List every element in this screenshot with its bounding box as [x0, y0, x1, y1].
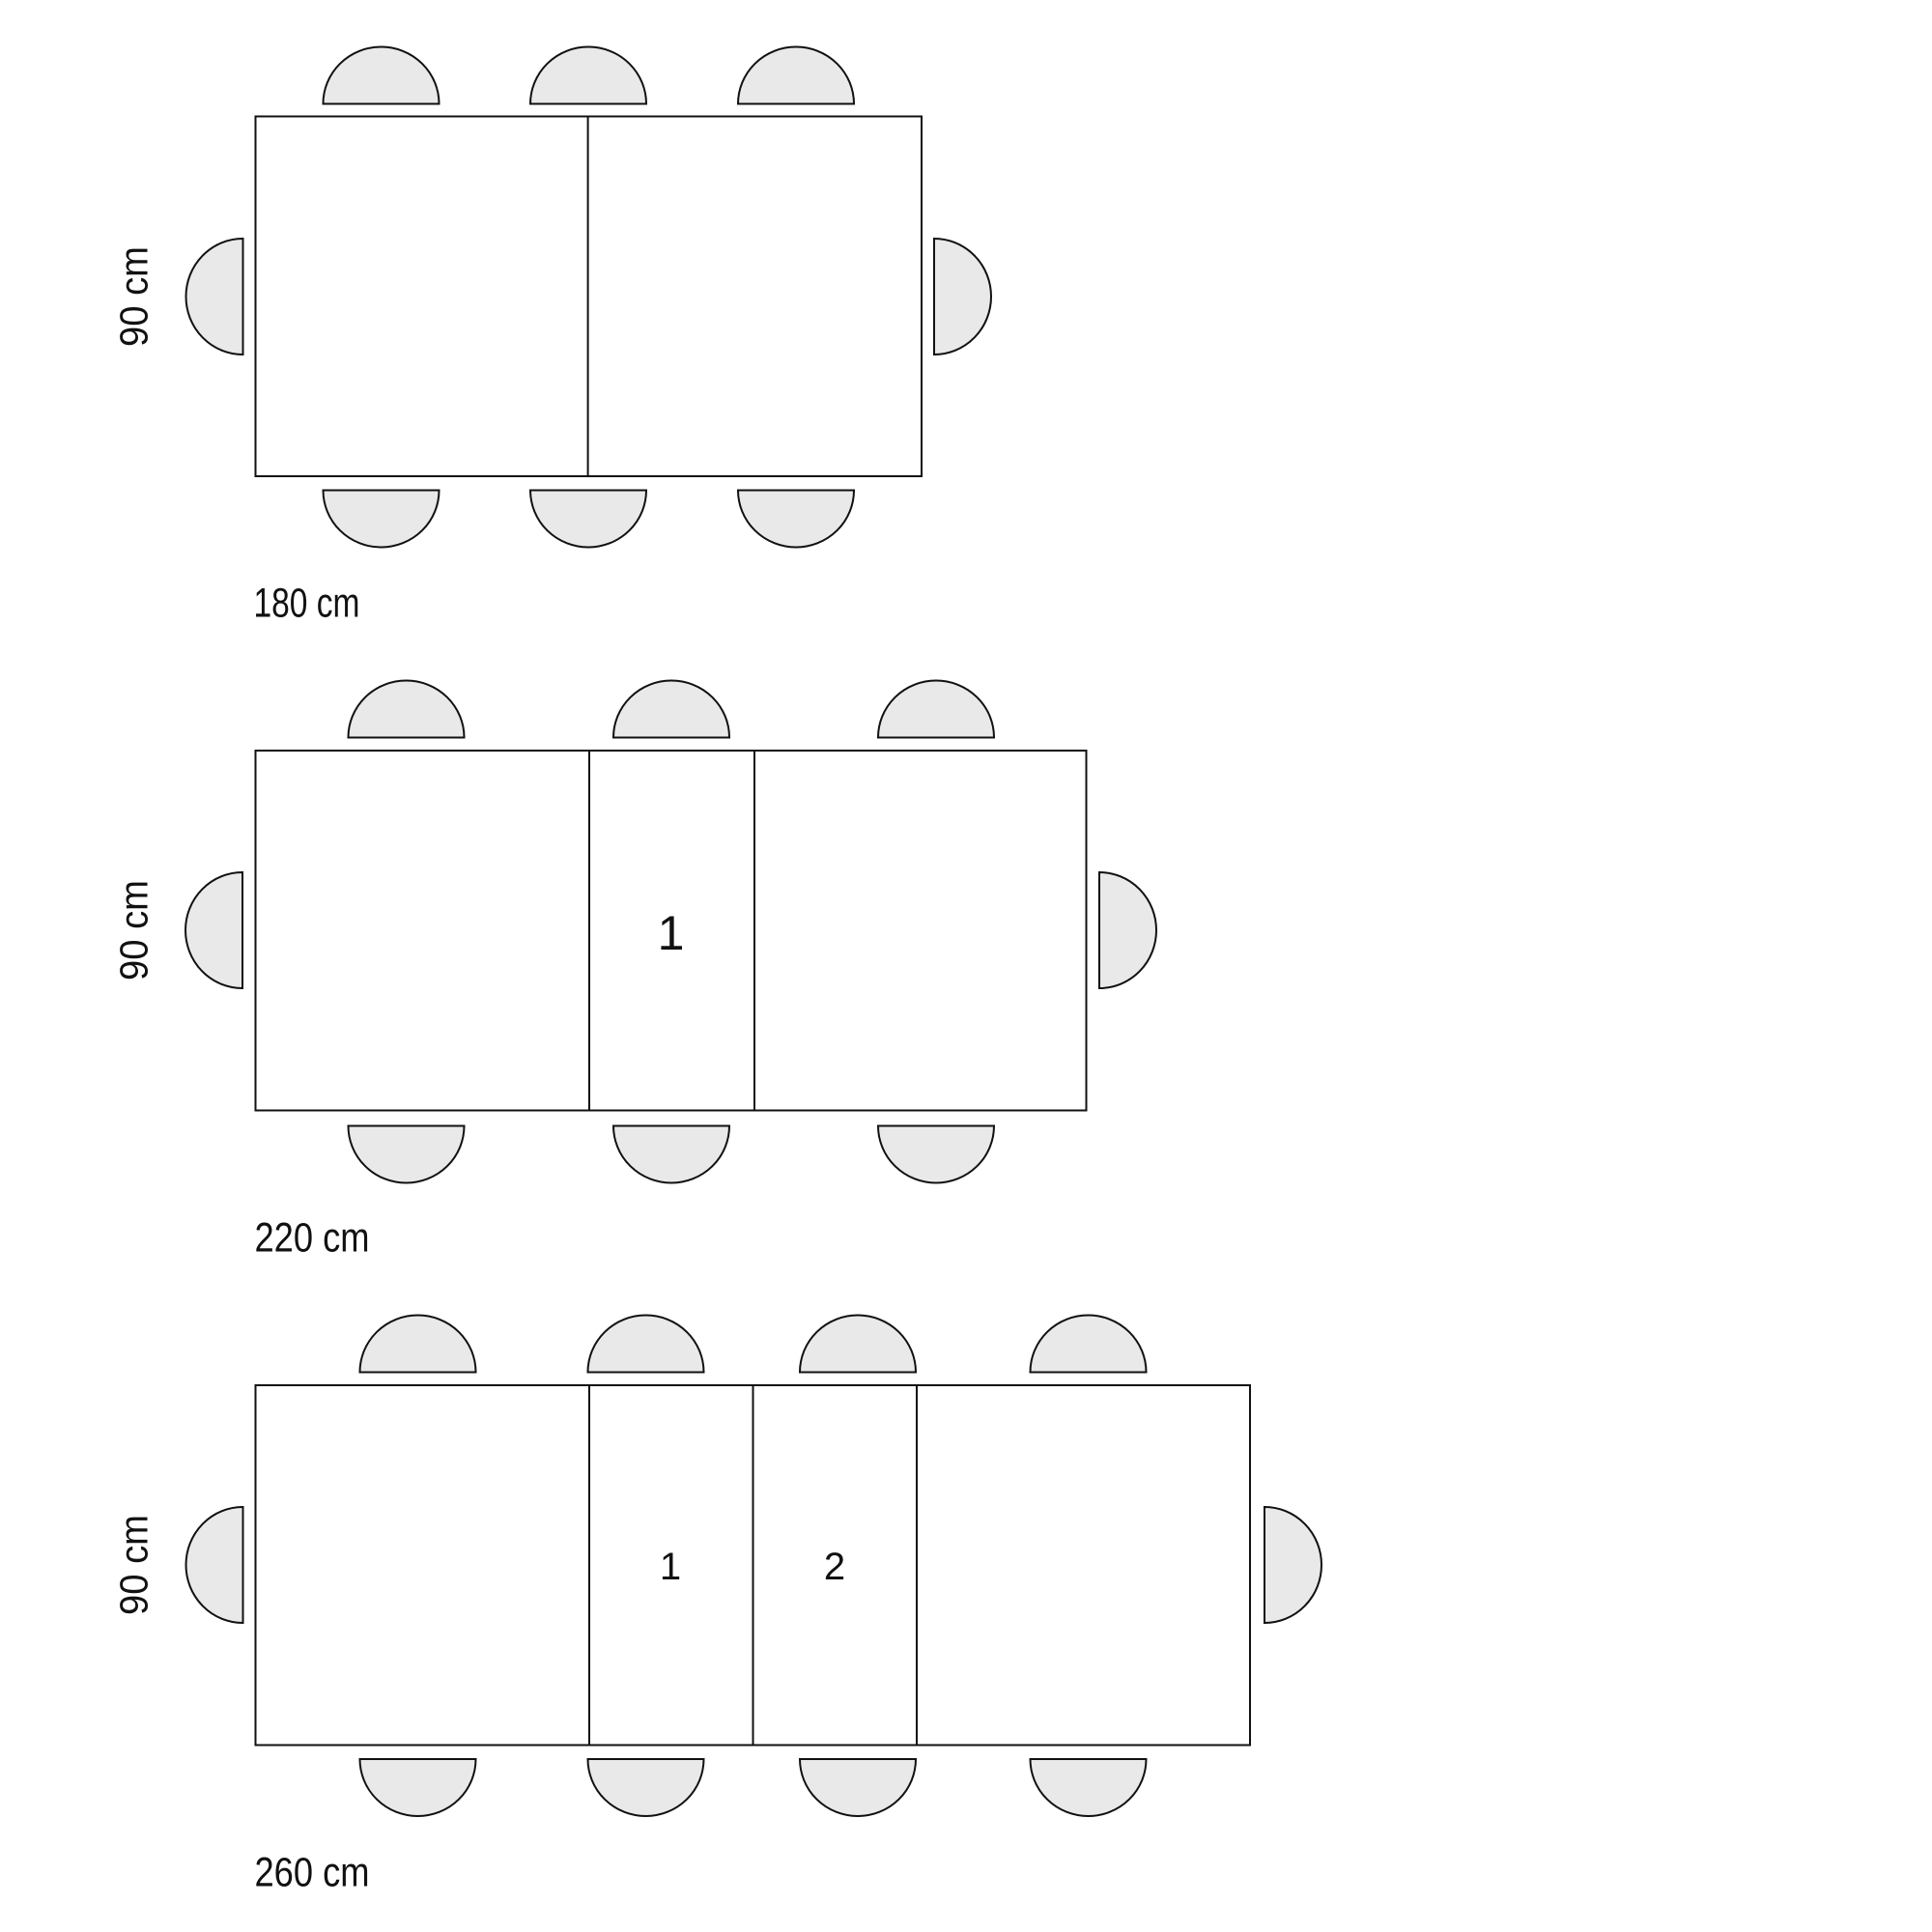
svg-text:220 cm: 220 cm: [255, 1216, 370, 1262]
svg-text:90 cm: 90 cm: [112, 880, 156, 980]
svg-text:2: 2: [824, 1546, 845, 1588]
svg-text:260 cm: 260 cm: [255, 1851, 370, 1896]
svg-text:1: 1: [658, 906, 685, 960]
svg-text:180 cm: 180 cm: [254, 582, 360, 627]
svg-text:90 cm: 90 cm: [112, 1515, 156, 1615]
svg-text:90 cm: 90 cm: [112, 246, 156, 347]
svg-text:1: 1: [660, 1546, 681, 1588]
